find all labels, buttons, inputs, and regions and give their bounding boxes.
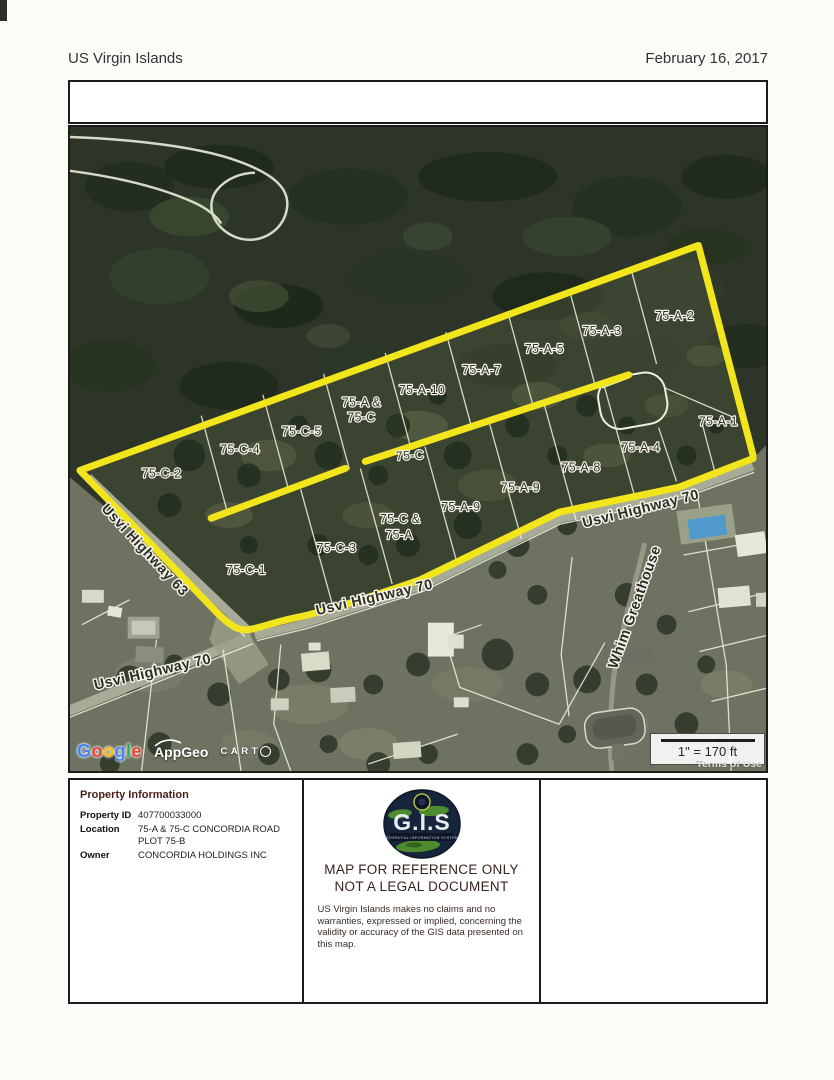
empty-panel-section (541, 780, 766, 1002)
info-panel: Property Information Property ID 4077000… (68, 778, 768, 1004)
parcel-label: 75-C-2 (142, 466, 182, 480)
page-header: US Virgin Islands February 16, 2017 (68, 50, 768, 67)
parcel-label: 75-A-2 (655, 309, 694, 323)
property-id-label: Property ID (80, 810, 138, 822)
parcel-label: 75-C (395, 448, 424, 463)
google-logo: Google (77, 741, 142, 762)
gis-logo-text: G.I.S (393, 809, 450, 835)
carto-o-icon (260, 746, 271, 757)
owner-label: Owner (80, 850, 138, 862)
appgeo-swoosh-icon (154, 739, 184, 747)
parcel-label: 75-C-1 (226, 563, 266, 577)
google-letter: G (77, 741, 92, 761)
property-info-section: Property Information Property ID 4077000… (70, 780, 304, 1002)
owner-value: CONCORDIA HOLDINGS INC (138, 850, 290, 862)
gis-logo-subtext: GEOSPATIAL INFORMATION SYSTEMS (382, 836, 460, 840)
property-info-title: Property Information (80, 789, 292, 801)
google-letter: e (132, 741, 143, 761)
location-row: Location 75-A & 75-C CONCORDIA ROAD PLOT… (80, 824, 292, 848)
carto-text: CART (221, 746, 261, 757)
appgeo-logo: AppGeo (154, 744, 208, 760)
parcel-label: 75-A-4 (621, 440, 660, 454)
parcel-label: 75-C-5 (282, 425, 322, 439)
location-value: 75-A & 75-C CONCORDIA ROAD PLOT 75-B (138, 824, 290, 848)
scale-bar (661, 739, 755, 742)
gis-logo: G.I.S GEOSPATIAL INFORMATION SYSTEMS (382, 788, 462, 860)
parcel-label: 75-A (385, 528, 413, 542)
parcel-label: 75-C & (380, 512, 421, 526)
parcel-label: 75-A-5 (525, 342, 564, 356)
terms-of-use: Terms of Use (696, 758, 762, 770)
header-region: US Virgin Islands (68, 50, 183, 67)
parcel-label: 75-C-4 (220, 442, 260, 456)
carto-logo: CART (221, 746, 271, 757)
parcel-label: 75-A-3 (582, 324, 621, 338)
google-letter: o (103, 741, 115, 761)
google-letter: o (92, 741, 104, 761)
property-id-row: Property ID 407700033000 (80, 810, 292, 822)
parcel-label: 75-A-9 (441, 500, 480, 514)
aerial-map: 75-C-275-C-475-C-575-A &75-C75-A-1075-A-… (68, 125, 768, 773)
location-label: Location (80, 824, 138, 848)
scanned-gis-map-page: US Virgin Islands February 16, 2017 (0, 0, 834, 1080)
map-attribution: Google AppGeo CART (77, 741, 271, 762)
parcel-label: 75-A-1 (699, 415, 738, 429)
parcel-label: 75-C-3 (317, 541, 357, 555)
property-id-value: 407700033000 (138, 810, 290, 822)
header-date: February 16, 2017 (645, 50, 768, 67)
disclaimer-text: US Virgin Islands makes no claims and no… (318, 904, 526, 950)
parcel-label: 75-A-7 (462, 363, 501, 377)
parcel-label: 75-A-8 (562, 460, 601, 474)
map-canvas: 75-C-275-C-475-C-575-A &75-C75-A-1075-A-… (70, 127, 766, 771)
notice-section: G.I.S GEOSPATIAL INFORMATION SYSTEMS MAP… (304, 780, 541, 1002)
owner-row: Owner CONCORDIA HOLDINGS INC (80, 850, 292, 862)
notice-line1: MAP FOR REFERENCE ONLY (316, 862, 527, 877)
scale-label: 1" = 170 ft (651, 744, 764, 759)
empty-title-box (68, 80, 768, 124)
notice-line2: NOT A LEGAL DOCUMENT (316, 879, 527, 894)
parcel-label: 75-C (347, 411, 375, 425)
parcel-label: 75-A-10 (399, 383, 445, 397)
scan-artifact (0, 0, 7, 21)
parcel-label: 75-A-9 (501, 480, 540, 494)
parcel-label: 75-A & (342, 396, 381, 410)
google-letter: g (115, 741, 127, 761)
